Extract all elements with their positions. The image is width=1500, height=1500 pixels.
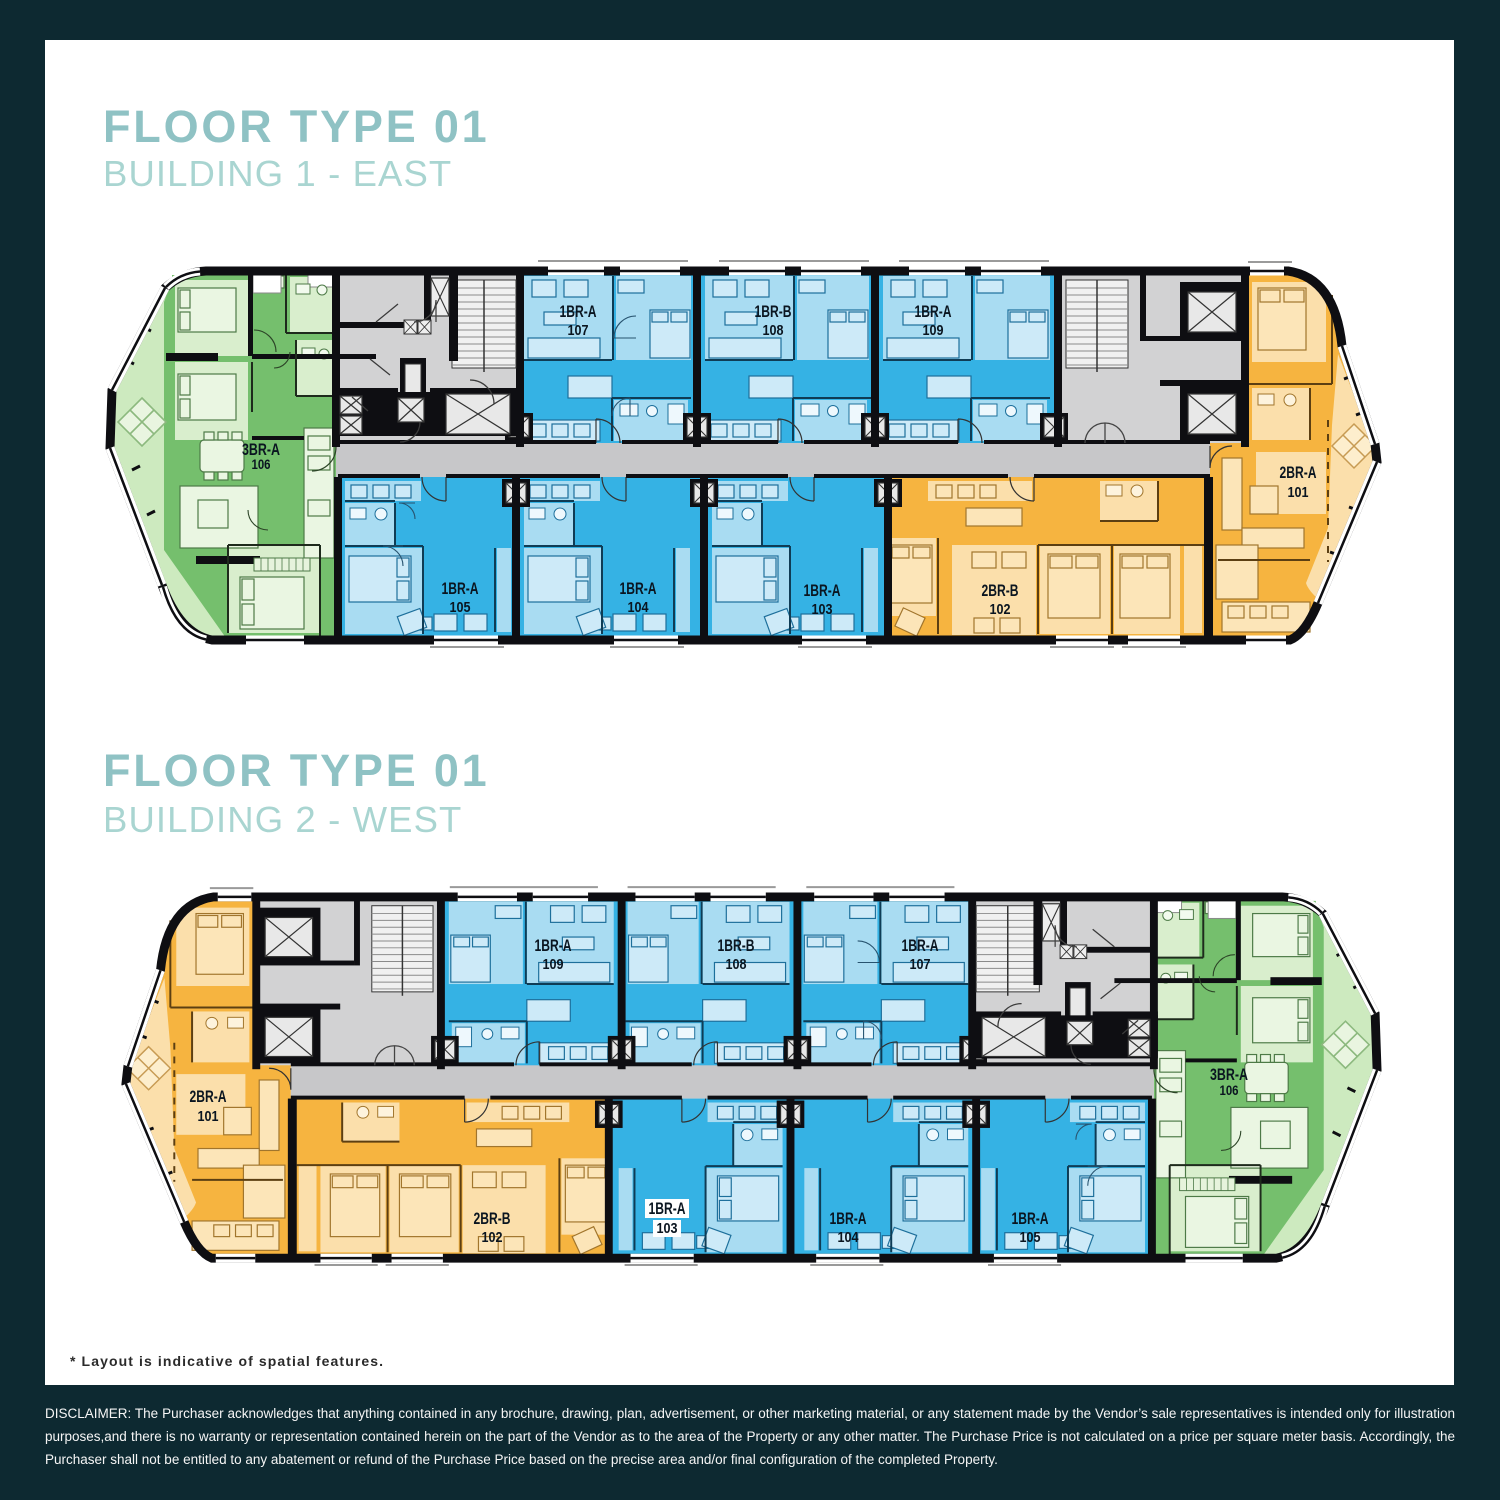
svg-text:103: 103 [812,601,833,618]
svg-text:108: 108 [726,956,747,973]
svg-text:1BR-A: 1BR-A [902,937,939,955]
svg-text:1BR-A: 1BR-A [649,1200,686,1218]
svg-text:2BR-A: 2BR-A [190,1088,227,1106]
svg-text:1BR-A: 1BR-A [620,580,657,598]
svg-text:1BR-A: 1BR-A [560,303,597,321]
svg-text:107: 107 [910,956,931,973]
svg-text:1BR-B: 1BR-B [718,937,755,955]
svg-text:106: 106 [252,456,271,472]
svg-text:106: 106 [1220,1082,1239,1098]
svg-text:101: 101 [1288,484,1309,501]
svg-text:1BR-A: 1BR-A [804,582,841,600]
svg-text:1BR-B: 1BR-B [755,303,792,321]
svg-text:1BR-A: 1BR-A [535,937,572,955]
svg-text:109: 109 [923,322,944,339]
svg-text:2BR-B: 2BR-B [982,582,1019,600]
svg-text:104: 104 [628,599,650,616]
svg-text:102: 102 [482,1229,503,1246]
svg-text:105: 105 [450,599,471,616]
svg-text:1BR-A: 1BR-A [915,303,952,321]
svg-text:109: 109 [543,956,564,973]
svg-text:104: 104 [838,1229,860,1246]
svg-text:101: 101 [198,1108,219,1125]
svg-text:1BR-A: 1BR-A [830,1210,867,1228]
svg-text:108: 108 [763,322,784,339]
svg-text:105: 105 [1020,1229,1041,1246]
svg-text:102: 102 [990,601,1011,618]
svg-text:103: 103 [657,1220,678,1237]
svg-text:1BR-A: 1BR-A [442,580,479,598]
svg-text:2BR-B: 2BR-B [474,1210,511,1228]
svg-text:1BR-A: 1BR-A [1012,1210,1049,1228]
svg-text:107: 107 [568,322,589,339]
svg-text:2BR-A: 2BR-A [1280,464,1317,482]
